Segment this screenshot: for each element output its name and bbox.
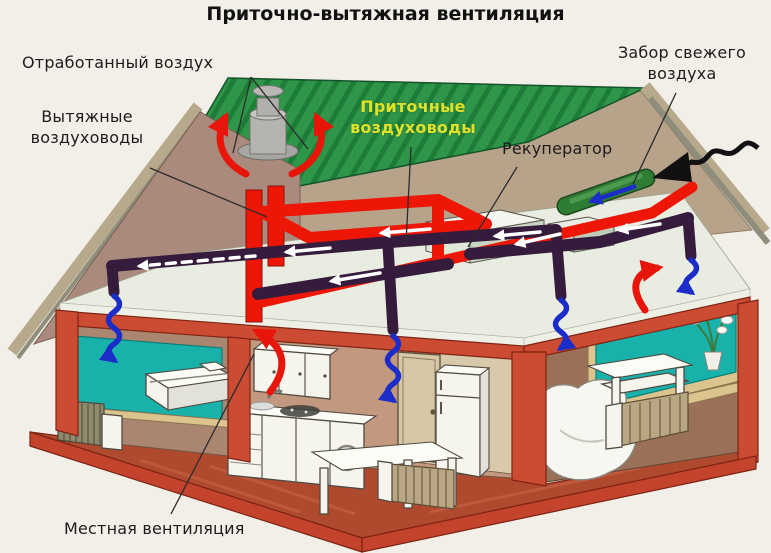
label-supply-ducts: Приточные воздуховоды [334, 97, 492, 139]
supply-drop-kitchen [388, 246, 393, 330]
upper-cabinets [254, 343, 338, 399]
supply-drop-window [688, 218, 691, 256]
supply-drop-living [556, 232, 561, 296]
stove-top [280, 405, 320, 417]
corner-post [512, 352, 546, 486]
sink [250, 402, 274, 410]
label-recuperator: Рекуператор [502, 139, 662, 160]
label-local-ventilation: Местная вентиляция [64, 519, 314, 540]
label-fresh-air-intake: Забор свежего воздуха [596, 43, 768, 85]
label-exhaust-ducts: Вытяжные воздуховоды [8, 107, 166, 149]
divider-post [228, 337, 250, 462]
bedroom [58, 325, 236, 456]
diagram-title: Приточно-вытяжная вентиляция [0, 3, 771, 25]
left-post [56, 310, 78, 436]
ventilation-diagram: Приточно-вытяжная вентиляция Отработанны… [0, 0, 771, 553]
right-post [738, 300, 758, 468]
supply-drop-bedroom [112, 266, 114, 292]
label-exhaust-air: Отработанный воздух [22, 53, 262, 74]
